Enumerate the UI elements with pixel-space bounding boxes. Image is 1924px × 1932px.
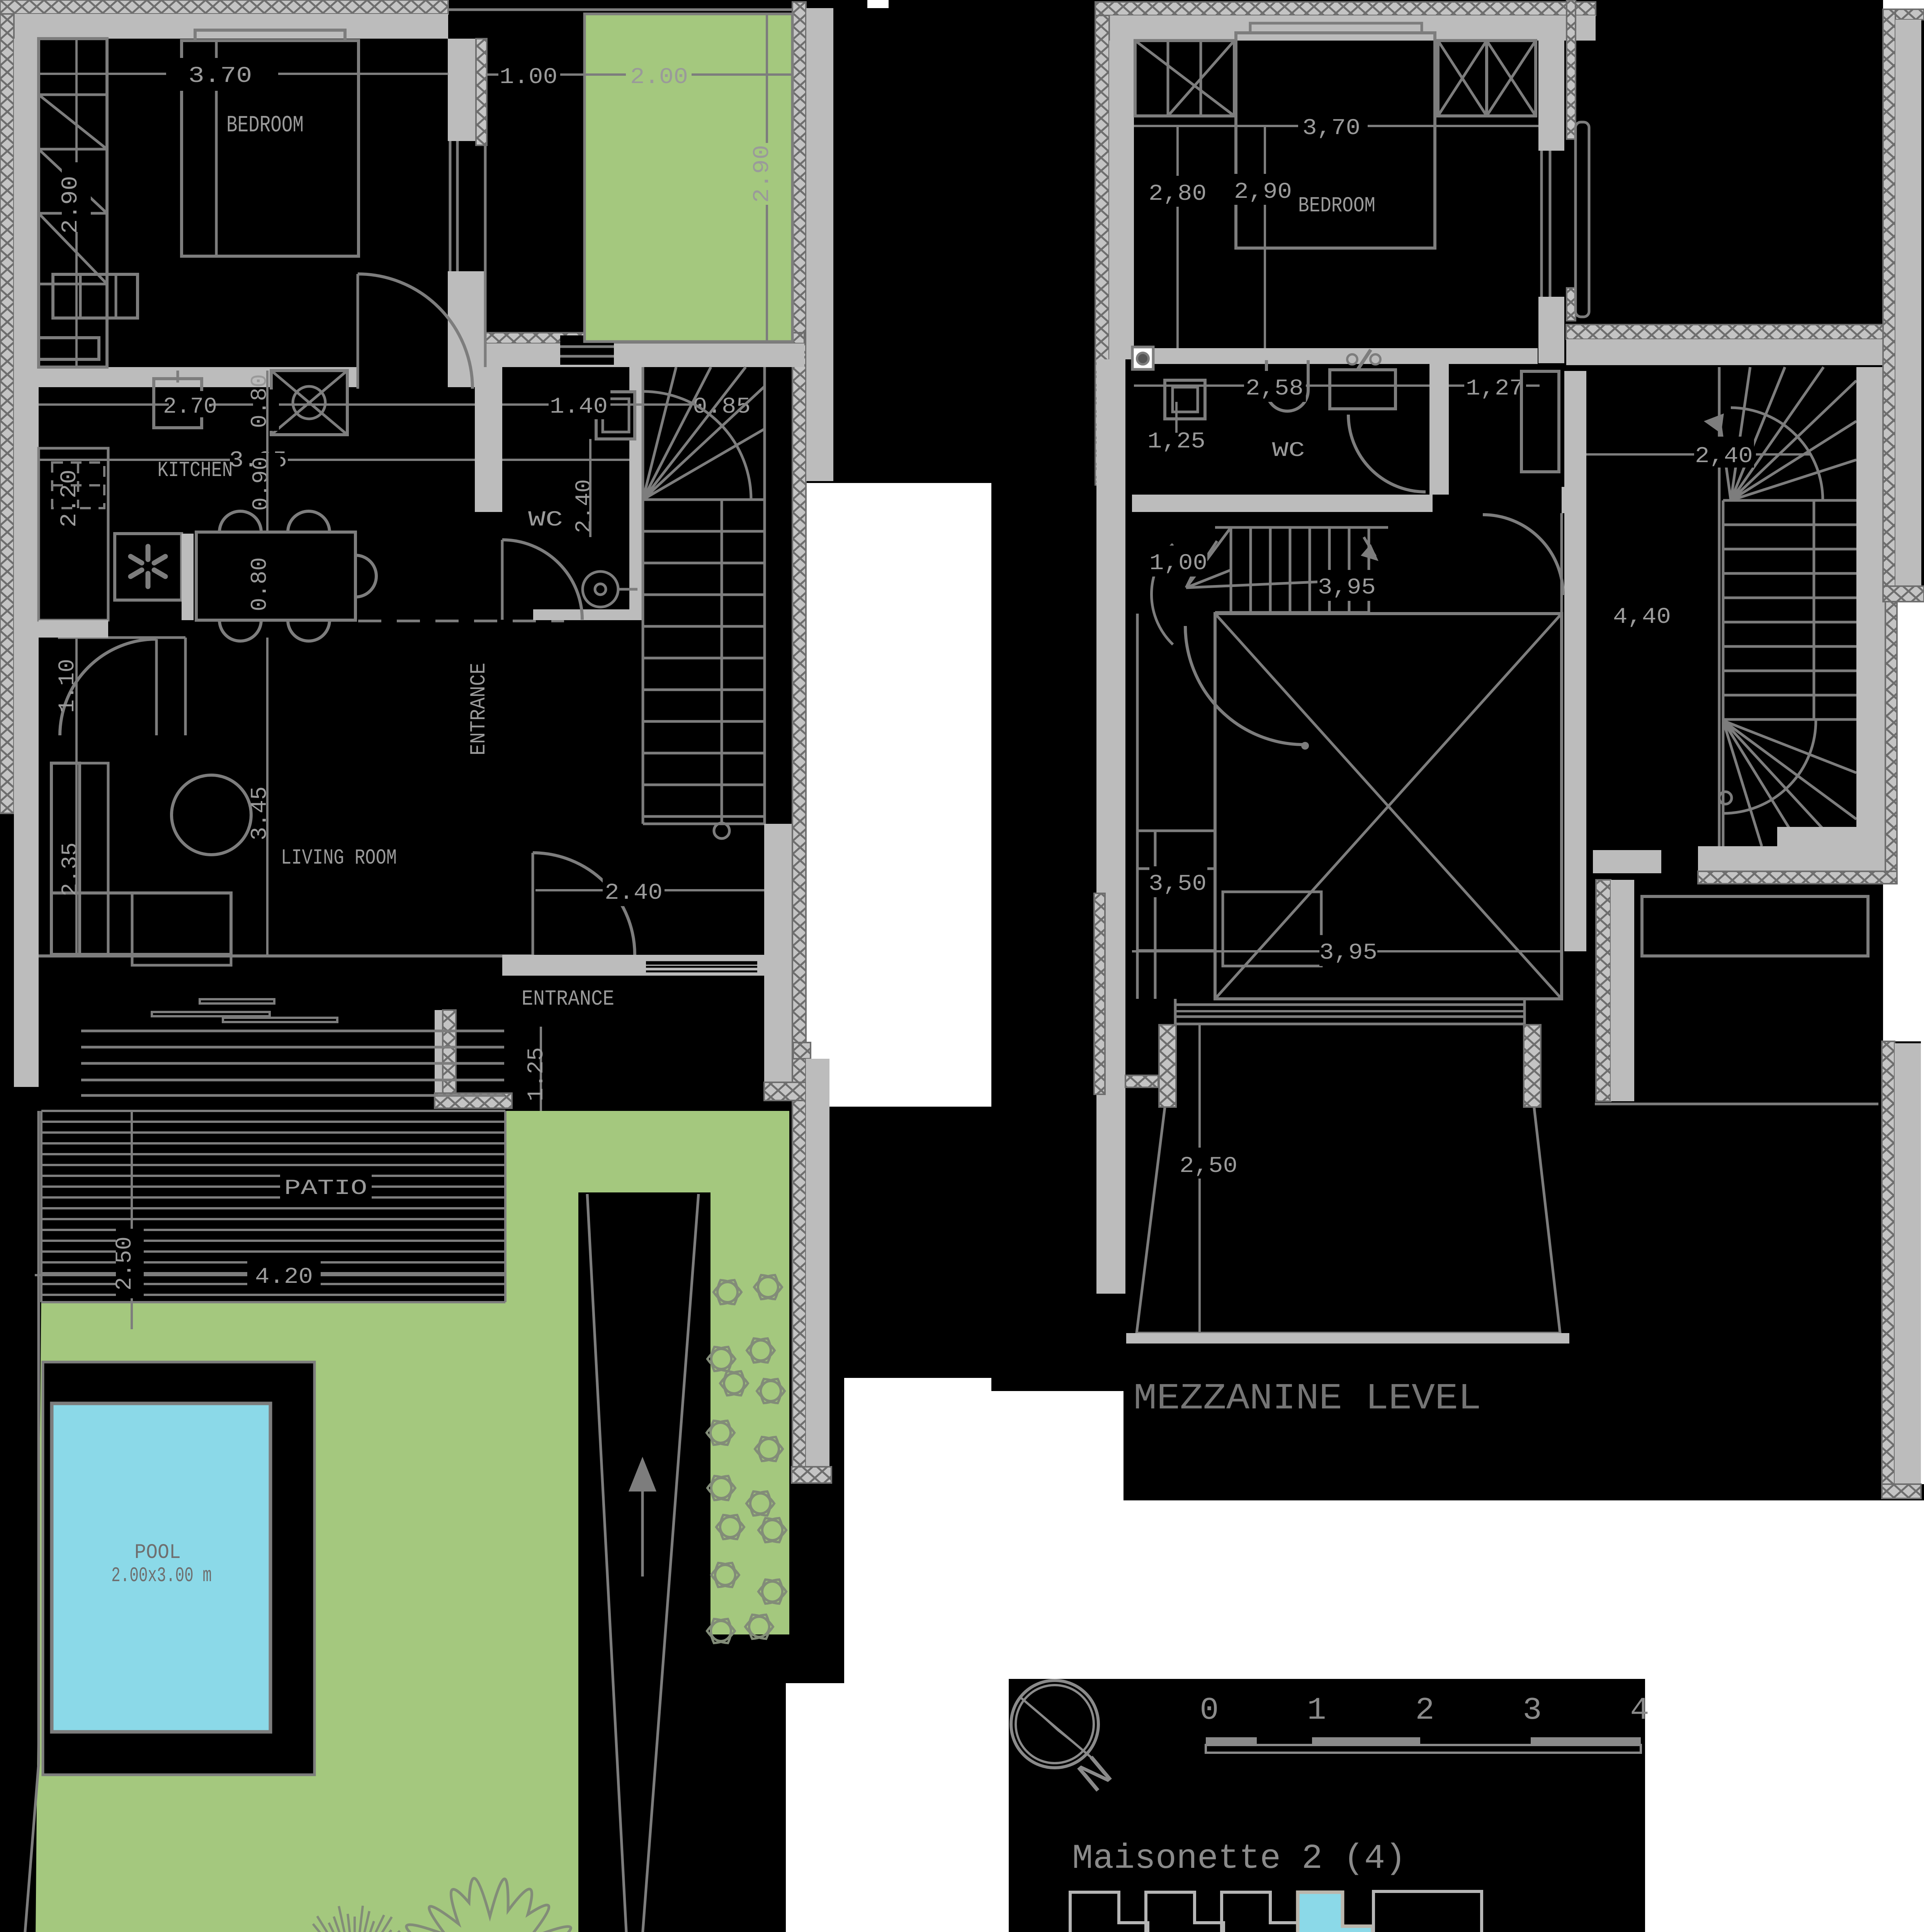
svg-text:PATIO: PATIO xyxy=(284,1176,367,1201)
svg-text:2.35: 2.35 xyxy=(58,842,83,896)
svg-text:1,25: 1,25 xyxy=(1147,429,1205,454)
svg-text:2.40: 2.40 xyxy=(572,479,597,533)
svg-text:2,40: 2,40 xyxy=(1695,444,1753,469)
svg-text:3,95: 3,95 xyxy=(1319,940,1377,966)
svg-text:2.00: 2.00 xyxy=(630,65,688,90)
svg-text:2.40: 2.40 xyxy=(605,881,663,906)
svg-text:2.50: 2.50 xyxy=(112,1236,138,1291)
svg-text:3,50: 3,50 xyxy=(1149,872,1207,897)
svg-text:Maisonette 2 (4): Maisonette 2 (4) xyxy=(1072,1839,1406,1879)
svg-text:ENTRANCE: ENTRANCE xyxy=(466,663,491,755)
svg-text:ENTRANCE: ENTRANCE xyxy=(522,986,614,1011)
svg-text:2.20: 2.20 xyxy=(57,469,82,527)
svg-text:0: 0 xyxy=(1200,1692,1219,1728)
svg-text:1.40: 1.40 xyxy=(550,395,608,420)
svg-text:1.00: 1.00 xyxy=(500,65,557,90)
svg-text:2,80: 2,80 xyxy=(1149,182,1207,207)
svg-text:1.10: 1.10 xyxy=(55,659,80,713)
svg-text:2.90: 2.90 xyxy=(58,176,83,234)
svg-text:WC: WC xyxy=(1272,439,1305,463)
svg-text:MEZZANINE LEVEL: MEZZANINE LEVEL xyxy=(1134,1378,1481,1420)
svg-text:1,00: 1,00 xyxy=(1149,551,1207,576)
svg-text:BEDROOM: BEDROOM xyxy=(226,112,304,139)
svg-text:1: 1 xyxy=(1307,1692,1326,1728)
svg-text:2,50: 2,50 xyxy=(1180,1154,1237,1179)
svg-text:1.25: 1.25 xyxy=(524,1047,549,1101)
svg-text:0.90: 0.90 xyxy=(249,457,274,511)
svg-text:0.80: 0.80 xyxy=(248,557,273,611)
svg-text:4: 4 xyxy=(1630,1692,1649,1728)
svg-text:0.80: 0.80 xyxy=(248,374,273,428)
svg-text:2.70: 2.70 xyxy=(163,395,217,420)
svg-text:POOL: POOL xyxy=(134,1541,181,1565)
svg-text:3.70: 3.70 xyxy=(189,64,252,89)
svg-text:1,27: 1,27 xyxy=(1466,376,1524,401)
svg-text:3,95: 3,95 xyxy=(1318,575,1376,600)
svg-text:2.90: 2.90 xyxy=(750,145,775,203)
svg-text:2.00x3.00 m: 2.00x3.00 m xyxy=(111,1564,212,1588)
svg-text:KITCHEN: KITCHEN xyxy=(158,458,233,483)
svg-text:4.20: 4.20 xyxy=(255,1265,313,1290)
svg-text:2: 2 xyxy=(1415,1692,1434,1728)
svg-text:2,90: 2,90 xyxy=(1234,180,1292,205)
svg-text:3.45: 3.45 xyxy=(248,786,273,840)
svg-text:2,58: 2,58 xyxy=(1246,376,1304,401)
svg-text:3: 3 xyxy=(1523,1692,1542,1728)
svg-text:4,40: 4,40 xyxy=(1613,605,1671,630)
svg-text:WC: WC xyxy=(528,507,563,532)
svg-text:BEDROOM: BEDROOM xyxy=(1298,193,1375,218)
svg-text:LIVING ROOM: LIVING ROOM xyxy=(281,845,397,870)
svg-text:3,70: 3,70 xyxy=(1302,116,1360,141)
